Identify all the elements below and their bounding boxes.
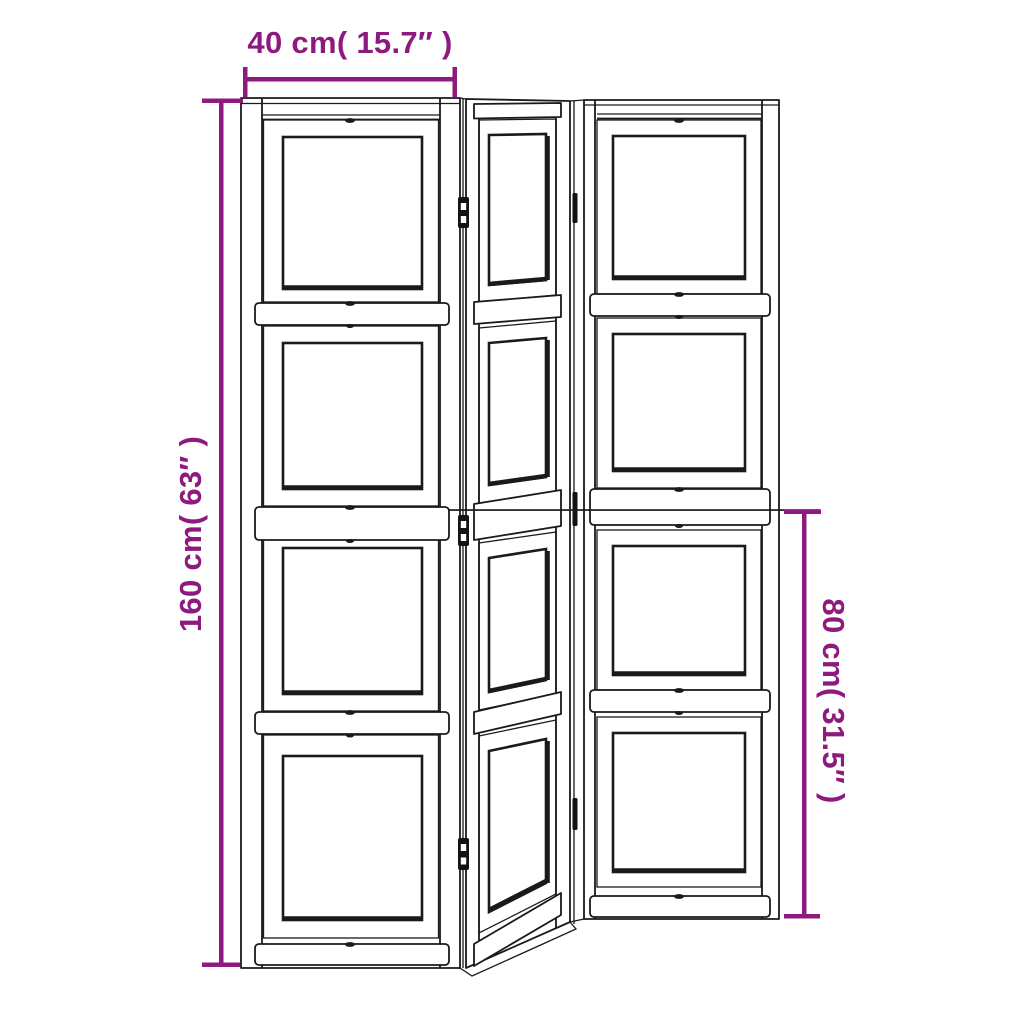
width-dimension-label: 40 cm( 15.7″ ) xyxy=(247,25,452,61)
height-dimension-label: 160 cm( 63″ ) xyxy=(173,436,209,632)
middle-panel xyxy=(460,98,584,976)
half-height-dimension-label: 80 cm( 31.5″ ) xyxy=(815,598,851,803)
mid-height-extension-line xyxy=(448,509,820,511)
width-dimension-line xyxy=(243,67,457,97)
product-dimension-diagram: 40 cm( 15.7″ ) 160 cm( 63″ ) 80 cm( 31.5… xyxy=(0,0,1024,1024)
divider-line-drawing xyxy=(0,0,1024,1024)
left-panel xyxy=(241,98,460,968)
hinge-icons-right-junction xyxy=(573,193,578,830)
